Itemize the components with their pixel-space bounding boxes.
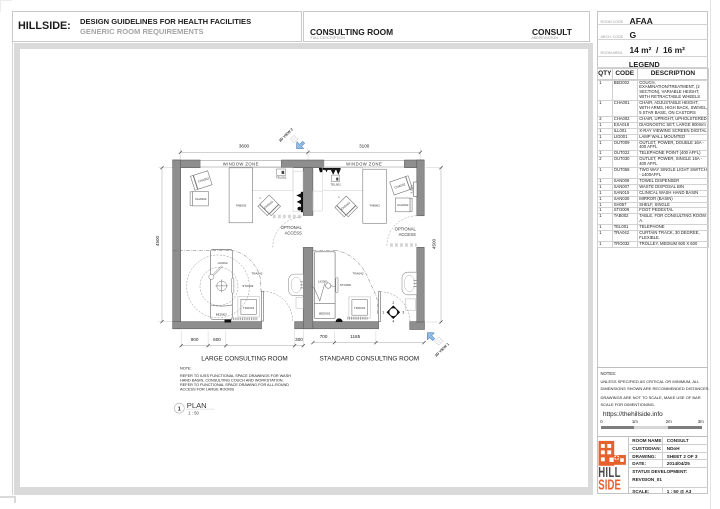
svg-text:LIG002: LIG002: [218, 261, 228, 265]
svg-text:700: 700: [320, 334, 328, 339]
svg-text:STANDARD CONSULTING ROOM: STANDARD CONSULTING ROOM: [320, 355, 420, 362]
svg-text:3: 3: [402, 311, 404, 315]
svg-text:PLAN: PLAN: [187, 401, 207, 410]
svg-text:CHA002: CHA002: [195, 197, 207, 201]
svg-text:ACCESS: ACCESS: [285, 231, 302, 236]
svg-text:4500: 4500: [431, 238, 436, 249]
svg-text:LIG001: LIG001: [318, 280, 328, 284]
svg-text:TEL001: TEL001: [330, 182, 341, 186]
svg-text:WINDOW ZONE: WINDOW ZONE: [346, 161, 382, 166]
svg-text:3600: 3600: [239, 144, 250, 149]
svg-text:OPTIONAL: OPTIONAL: [281, 225, 303, 230]
svg-text:HAND BASIN, CONSULTING COUCH A: HAND BASIN, CONSULTING COUCH AND WORKSTA…: [180, 379, 284, 383]
svg-text:CHA002: CHA002: [397, 203, 409, 207]
svg-text:3D VIEW 1: 3D VIEW 1: [434, 342, 450, 358]
svg-text:TRO032: TRO032: [354, 306, 366, 310]
svg-text:NOTE:: NOTE:: [180, 366, 192, 370]
svg-text:1: 1: [382, 311, 384, 315]
svg-text:1 : 50: 1 : 50: [188, 411, 199, 416]
svg-text:300: 300: [295, 337, 303, 342]
svg-text:900: 900: [191, 337, 199, 342]
svg-text:3100: 3100: [359, 144, 370, 149]
svg-text:STO009: STO009: [340, 283, 351, 287]
svg-text:5.: 5.: [259, 196, 263, 200]
svg-text:2: 2: [392, 301, 394, 305]
svg-text:600: 600: [213, 337, 221, 342]
svg-text:WINDOW ZONE: WINDOW ZONE: [223, 161, 259, 166]
svg-text:REFER TO IUSS FUNCTIONAL SPACE: REFER TO IUSS FUNCTIONAL SPACE DRAWINGS …: [180, 374, 291, 378]
svg-text:4: 4: [392, 320, 394, 324]
svg-text:TEL001: TEL001: [276, 175, 287, 179]
svg-text:4500: 4500: [155, 235, 160, 246]
svg-text:5.: 5.: [337, 195, 341, 199]
svg-text:ACCESS: ACCESS: [399, 232, 416, 237]
svg-text:OPTIONAL: OPTIONAL: [395, 227, 417, 232]
svg-text:BED002: BED002: [319, 311, 331, 315]
svg-text:1185: 1185: [350, 334, 360, 339]
svg-text:LARGE CONSULTING ROOM: LARGE CONSULTING ROOM: [201, 355, 288, 362]
svg-text:STO009: STO009: [242, 284, 253, 288]
svg-text:ACCESS FOR LARGE ROOMS: ACCESS FOR LARGE ROOMS: [180, 388, 234, 392]
svg-text:SIDE: SIDE: [598, 476, 621, 493]
svg-text:REFER TO FUNCTIONAL SPACE DRAW: REFER TO FUNCTIONAL SPACE DRAWING FOR AL…: [180, 383, 289, 387]
svg-text:TRA042: TRA042: [352, 272, 363, 276]
svg-text:ILL001: ILL001: [409, 185, 413, 194]
svg-text:TRA042: TRA042: [251, 272, 262, 276]
svg-text:TAB002: TAB002: [369, 204, 380, 208]
svg-text:TAB002: TAB002: [236, 203, 247, 207]
svg-text:BED002: BED002: [216, 313, 228, 317]
svg-text:TRO032: TRO032: [243, 306, 255, 310]
